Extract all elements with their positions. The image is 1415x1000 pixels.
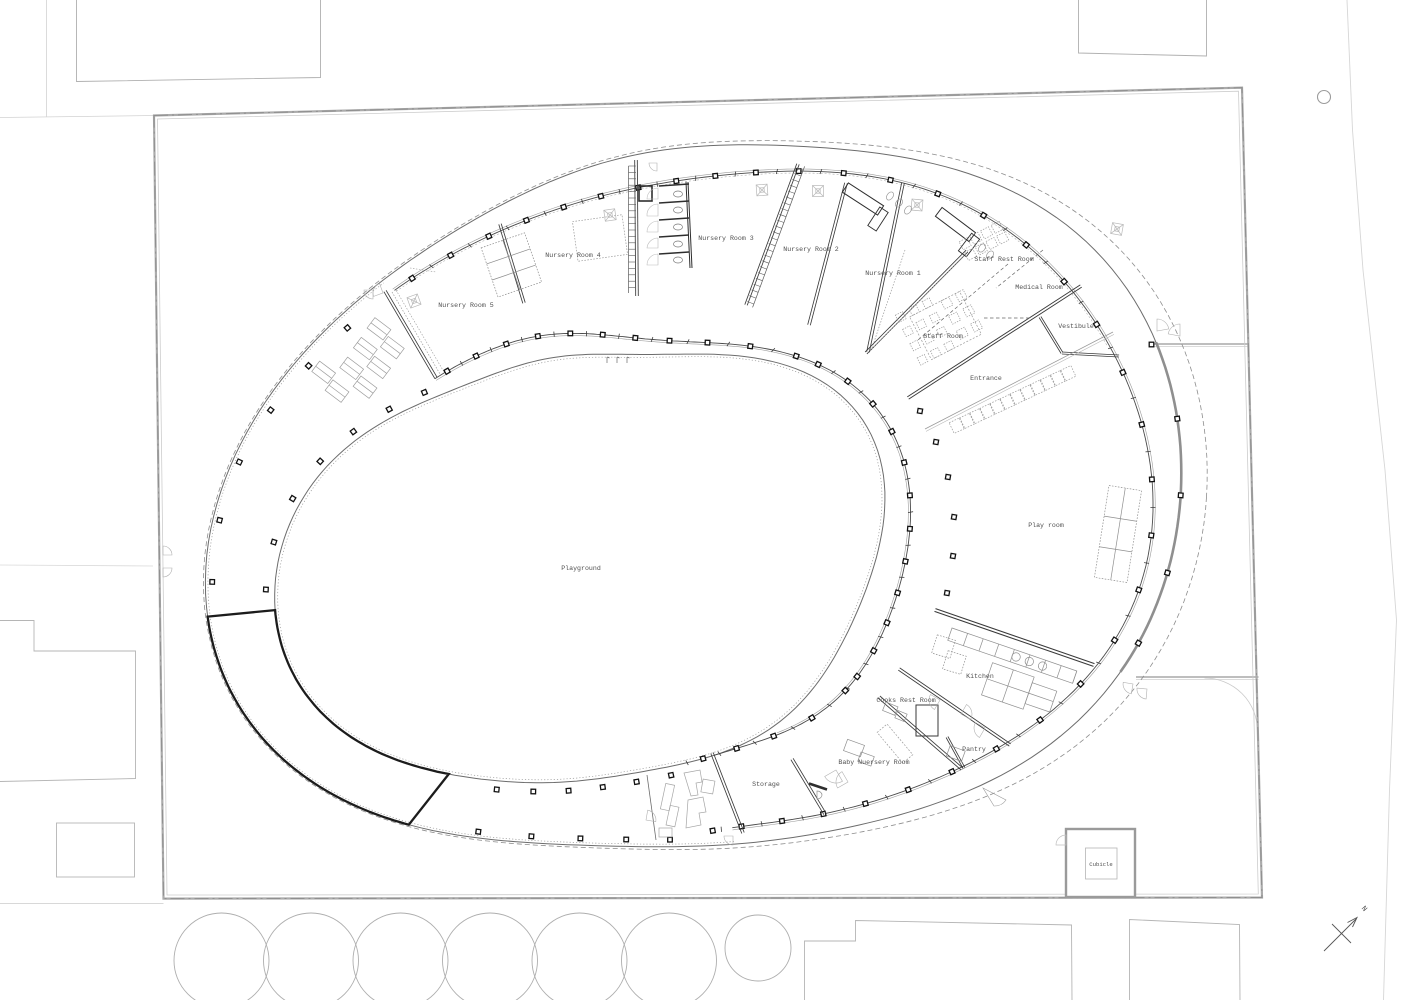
svg-text:Staff Rest Room: Staff Rest Room [974, 256, 1033, 263]
svg-text:Pantry: Pantry [962, 746, 986, 753]
svg-text:Nursery Room 3: Nursery Room 3 [698, 235, 753, 242]
svg-text:Nursery Room 4: Nursery Room 4 [545, 252, 600, 259]
svg-text:Play room: Play room [1028, 522, 1064, 529]
svg-text:Cubicle: Cubicle [1089, 861, 1113, 868]
svg-text:Staff Room: Staff Room [923, 333, 963, 340]
svg-text:Cooks Rest Room: Cooks Rest Room [876, 697, 935, 704]
svg-text:Vestibule: Vestibule [1058, 323, 1094, 330]
svg-text:Baby Nuersery Room: Baby Nuersery Room [838, 759, 909, 766]
svg-text:Medical Room: Medical Room [1015, 284, 1063, 291]
svg-text:Nursery Room 1: Nursery Room 1 [865, 270, 920, 277]
svg-text:Playground: Playground [561, 565, 601, 572]
svg-text:Nursery Room 2: Nursery Room 2 [783, 246, 838, 253]
svg-text:Nursery Room 5: Nursery Room 5 [438, 302, 493, 309]
svg-text:Storage: Storage [752, 781, 780, 788]
svg-text:Kitchen: Kitchen [966, 673, 994, 680]
svg-text:Entrance: Entrance [970, 375, 1002, 382]
